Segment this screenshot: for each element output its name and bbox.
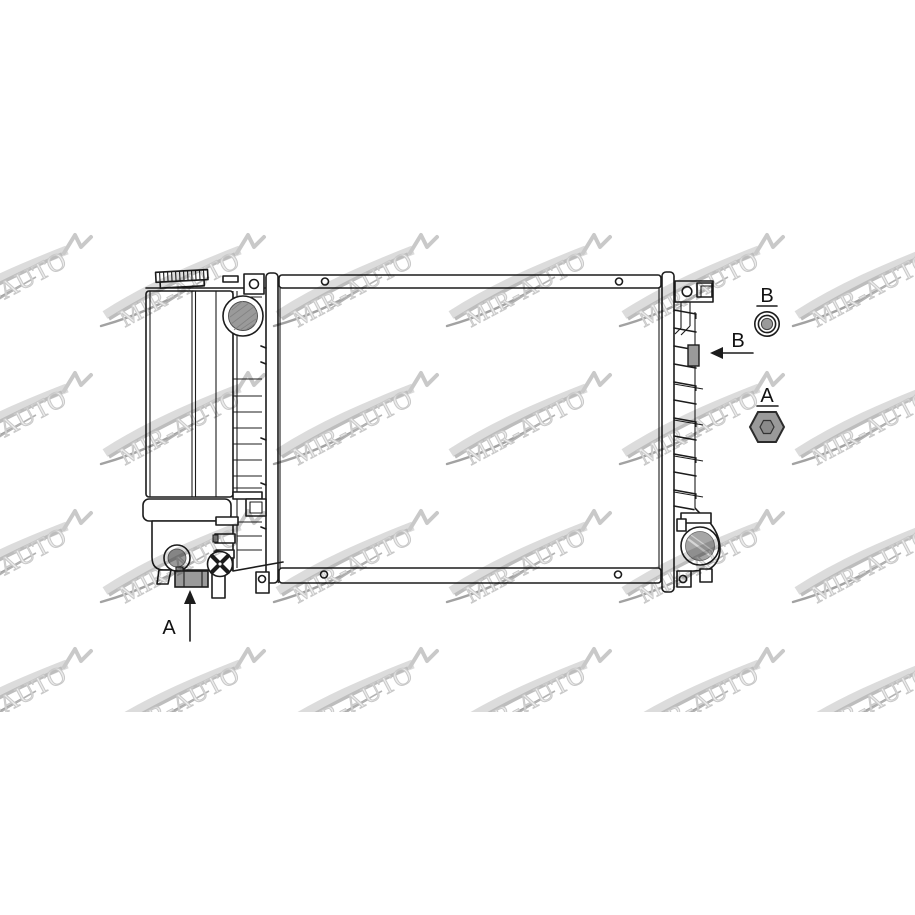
top-right-bracket <box>675 281 713 335</box>
pointer-a: A <box>162 590 196 641</box>
sensor-boss <box>688 345 699 366</box>
detail-b-nut: B <box>755 285 779 336</box>
phillips-screw <box>208 552 233 577</box>
core-bottom-header <box>279 568 661 583</box>
top-left-bracket <box>244 274 264 294</box>
filler-cap <box>156 270 209 289</box>
right-lower-bulge <box>677 508 720 587</box>
radiator-core <box>279 275 661 583</box>
outlet-port-right <box>681 527 719 565</box>
pointer-a-label: A <box>162 617 176 639</box>
detail-a-label: A <box>760 385 774 407</box>
pointer-b: B <box>710 330 753 359</box>
detail-b-label: B <box>760 285 773 307</box>
radiator-diagram: B B A A <box>0 0 915 915</box>
left-mounting-rail <box>262 273 282 583</box>
core-top-header <box>279 275 661 288</box>
inlet-port <box>223 296 263 336</box>
right-rib-column <box>674 310 703 510</box>
product-image: B B A A <box>0 0 915 915</box>
right-mounting-rail <box>662 272 674 592</box>
pointer-b-label: B <box>731 330 744 352</box>
detail-a-plug: A <box>750 385 784 442</box>
inlet-port-face <box>229 302 258 331</box>
